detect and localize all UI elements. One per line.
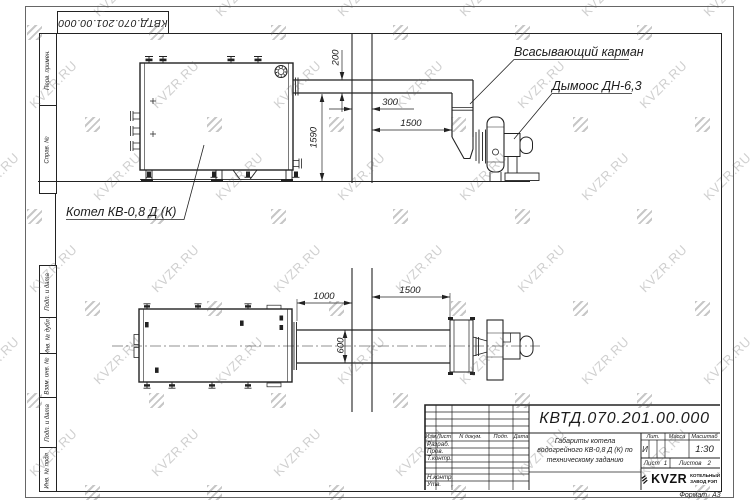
title-block-doc-number: КВТД.070.201.00.000 [529, 405, 720, 433]
label-suction-pocket: Всасывающий карман [514, 45, 644, 59]
sheets-cell: Листов2 [670, 458, 720, 468]
dimensions-plan [297, 293, 450, 363]
dim-wall-to-fan-1500: 1500 [391, 118, 431, 129]
row-utv: Утв. [425, 481, 454, 488]
row-razrab: Разраб. [425, 441, 454, 448]
boiler-elevation [38, 57, 530, 182]
col-ndokum: N докум. [452, 433, 489, 441]
col-podp: Подп. [489, 433, 513, 441]
title-block-description: Габариты котела водогрейного КВ-0,8 Д (К… [532, 434, 638, 468]
scale-value: 1:30 [689, 440, 720, 458]
sheet-cell: Лист1 [641, 458, 670, 468]
dim-axis-height-1590: 1590 [309, 118, 320, 158]
col-izm: Изм [425, 433, 436, 441]
dim-boiler-to-wall-1000: 1000 [304, 291, 344, 302]
label-boiler: Котел КВ-0,8 Д (К) [66, 205, 176, 219]
mass-label: Масса [665, 433, 689, 440]
lit-label: Лит. [641, 433, 665, 440]
kvzr-logo-icon [641, 471, 648, 488]
col-list: Лист [436, 433, 452, 441]
company-logo-text: KVZR [651, 472, 687, 486]
flue-duct-plan [297, 330, 450, 363]
smoke-exhauster-plan [473, 320, 533, 380]
scale-label: Масштаб [689, 433, 720, 440]
company-logo-cell: KVZR КОТЕЛЬНЫЙ ЗАВОД РЭП [641, 468, 720, 490]
dimensions-elevation [322, 50, 452, 181]
dim-duct-width-600: 600 [336, 326, 347, 366]
col-data: Дата [513, 433, 529, 441]
chimney-wall-elevation [352, 34, 372, 183]
row-prov: Пров. [425, 448, 454, 455]
dim-wall-depth-300: 300 [370, 97, 410, 108]
company-name: КОТЕЛЬНЫЙ ЗАВОД РЭП [690, 473, 720, 484]
lit-value: И [641, 440, 649, 458]
label-smoke-exhauster: Дымоос ДН-6,3 [552, 79, 642, 93]
drawing-sheet: KVZR.RUKVZR.RUKVZR.RUKVZR.RUKVZR.RUKVZR.… [0, 0, 750, 500]
row-nkontr: Н.контр. [425, 474, 454, 481]
smoke-exhauster-elevation [487, 117, 539, 181]
leader-lines [66, 60, 632, 220]
chimney-wall-plan [352, 268, 372, 412]
dim-plan-wall-to-fan-1500: 1500 [390, 285, 430, 296]
row-tkontr: Т.контр. [425, 455, 454, 462]
dim-duct-height-200: 200 [331, 38, 342, 78]
format-note: ФорматА3 [655, 491, 745, 499]
